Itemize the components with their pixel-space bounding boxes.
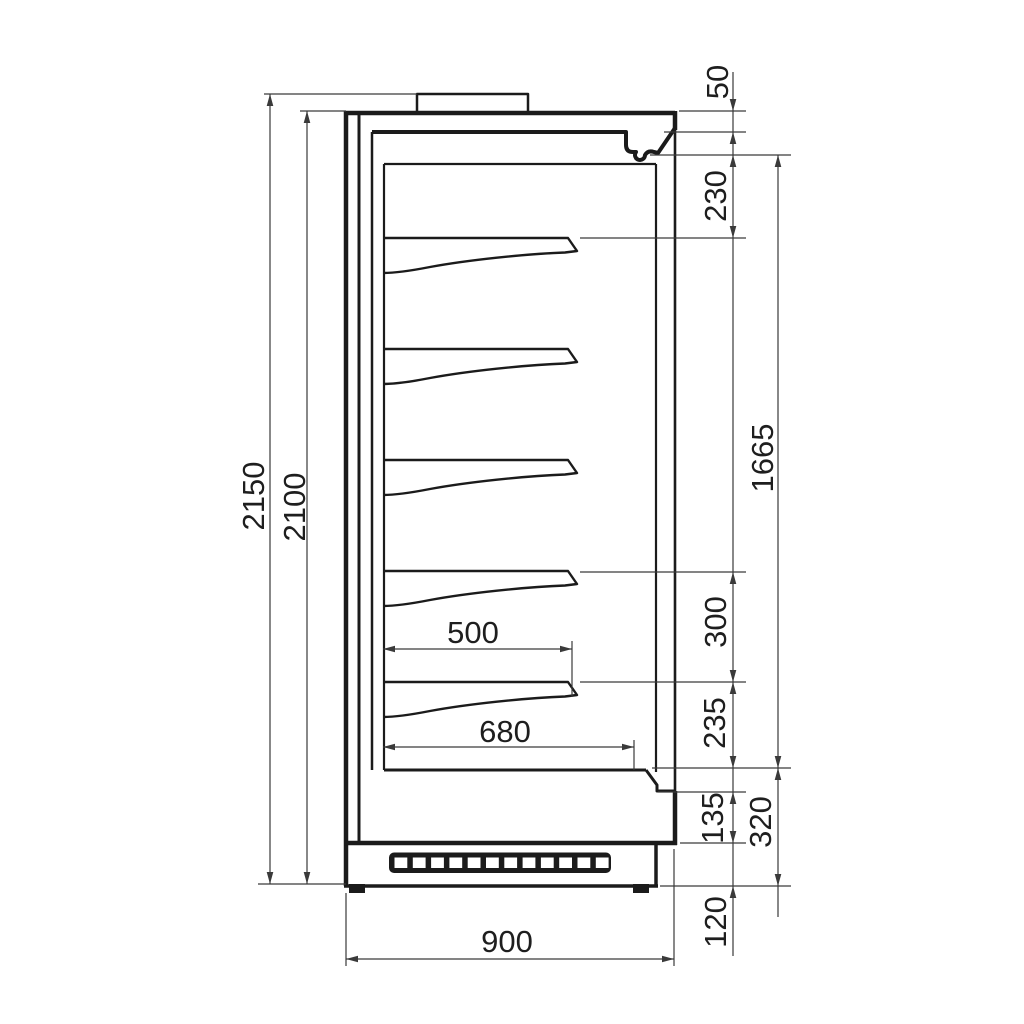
dim-label-shelf-depth: 500 [447,615,499,650]
shelf-5 [383,682,577,717]
grille-slot [504,858,517,869]
dim-arrowhead [267,872,274,884]
grille-slot [541,858,554,869]
foot-front [633,884,649,893]
grille-slot [578,858,591,869]
dim-label-total-height: 2150 [236,462,271,531]
shelf-4 [383,571,577,606]
dim-arrowhead [775,874,782,886]
dim-label-deck-depth: 680 [479,714,531,749]
dim-arrowhead [730,682,737,694]
grille-slot [395,858,408,869]
dim-arrowhead [730,226,737,238]
grille-slot [413,858,426,869]
dim-label-320: 320 [743,796,778,848]
shelf-2 [383,349,577,384]
grille-slot [468,858,481,869]
cabinet-side-section-drawing: 2150 2100 50 230 1665 300 235 135 320 12… [0,0,1024,1024]
dim-arrowhead [346,956,358,963]
grille-slot [486,858,499,869]
dim-label-300: 300 [698,596,733,648]
dim-arrowhead [730,155,737,167]
dim-arrowhead [560,646,572,653]
dim-label-body-height: 2100 [277,473,312,542]
shelf-3 [383,460,577,495]
dim-arrowhead [730,99,737,111]
top-unit-box [417,94,528,111]
floor-front-step [646,770,676,791]
dim-arrowhead [775,155,782,167]
dim-label-235: 235 [697,697,732,749]
dim-arrowhead [304,111,311,123]
foot-back [349,884,365,893]
dim-arrowhead [730,132,737,144]
grille-slot [596,858,609,869]
dim-arrowhead [730,831,737,843]
dim-label-1665: 1665 [745,424,780,493]
grille-slot [559,858,572,869]
dim-arrowhead [730,756,737,768]
dim-arrowhead [775,756,782,768]
cabinet-outline [344,94,677,886]
grille-slot [431,858,444,869]
dim-arrowhead [304,872,311,884]
dim-arrowhead [267,94,274,106]
dim-arrowhead [662,956,674,963]
dim-label-230: 230 [698,170,733,222]
dim-arrowhead [622,744,634,751]
dim-arrowhead [775,768,782,780]
dimension-labels: 2150 2100 50 230 1665 300 235 135 320 12… [236,65,780,959]
dim-label-overall-depth: 900 [481,924,533,959]
dim-arrowhead [730,670,737,682]
dim-arrowhead [730,572,737,584]
dim-label-120: 120 [698,896,733,948]
technical-drawing-canvas: 2150 2100 50 230 1665 300 235 135 320 12… [0,0,1024,1024]
grille-slot [449,858,462,869]
dim-label-135: 135 [695,792,730,844]
air-discharge-profile [372,128,675,160]
dim-arrowhead [730,792,737,804]
shelf-1 [383,238,577,273]
dim-label-canopy-50: 50 [700,65,735,99]
ventilation-grille [389,853,611,874]
grille-slot [523,858,536,869]
